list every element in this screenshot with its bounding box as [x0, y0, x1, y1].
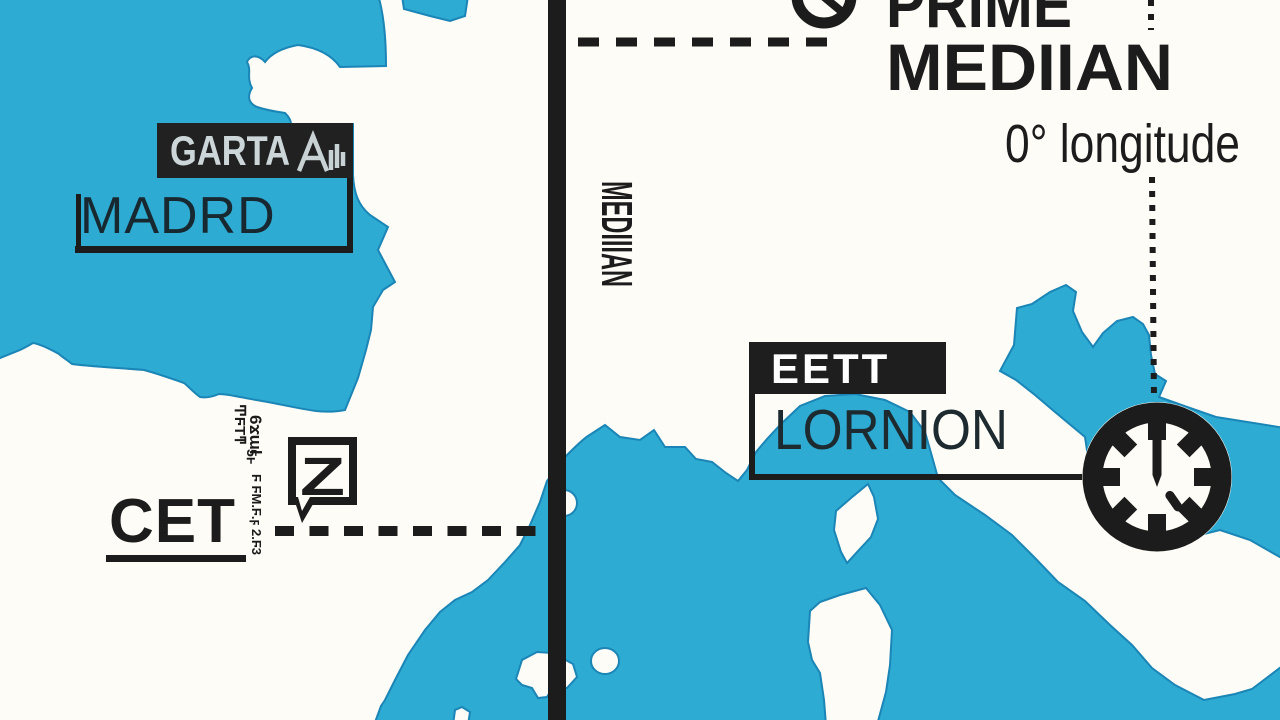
svg-text:0° longitude: 0° longitude — [1005, 114, 1240, 174]
svg-text:MEDIIAN: MEDIIAN — [886, 30, 1173, 104]
svg-text:MADRD: MADRD — [80, 187, 276, 245]
svg-text:Z: Z — [300, 447, 345, 507]
svg-text:GARTA: GARTA — [170, 127, 290, 174]
svg-text:EETT: EETT — [771, 345, 890, 392]
svg-text:ͲϜΤͳ: ͲϜΤͳ — [231, 404, 248, 445]
svg-text:MEDIIIAN: MEDIIIAN — [592, 181, 641, 287]
svg-text:LORNION: LORNION — [774, 398, 1008, 462]
svg-text:5ͱ: 5ͱ — [244, 449, 260, 465]
svg-text:CET: CET — [109, 487, 236, 556]
svg-text:Ϝ ϜΜ.Ϝ.ϝ 2.Ϝ3: Ϝ ϜΜ.Ϝ.ϝ 2.Ϝ3 — [249, 474, 264, 555]
